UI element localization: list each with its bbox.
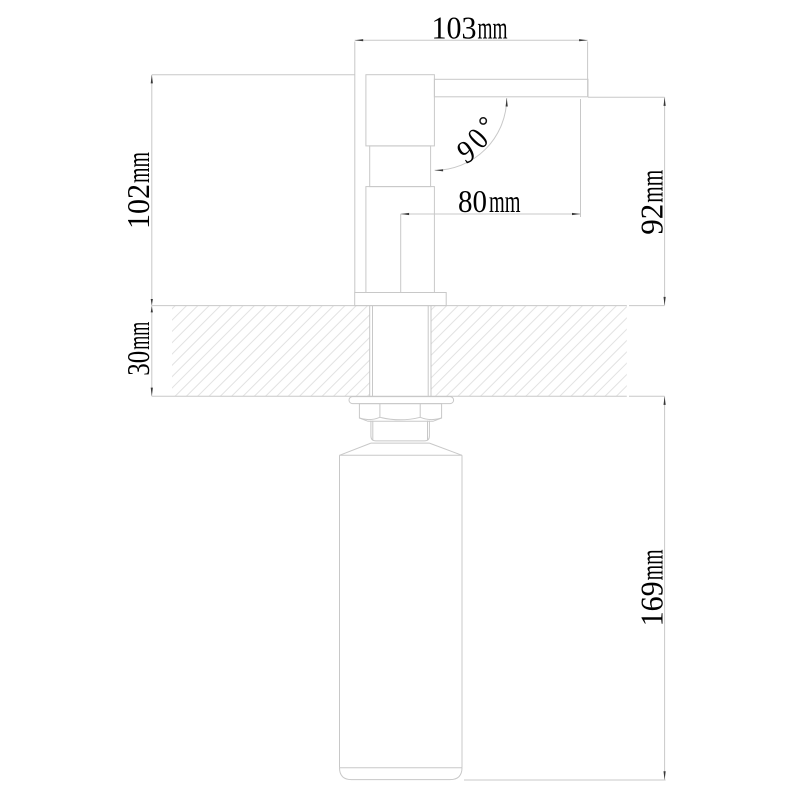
svg-text:102mm: 102mm <box>120 152 156 229</box>
svg-text:92mm: 92mm <box>633 170 669 235</box>
svg-text:80mm: 80mm <box>458 183 521 219</box>
svg-text:30mm: 30mm <box>120 322 156 376</box>
svg-text:169mm: 169mm <box>634 549 670 626</box>
svg-text:103mm: 103mm <box>432 9 508 45</box>
